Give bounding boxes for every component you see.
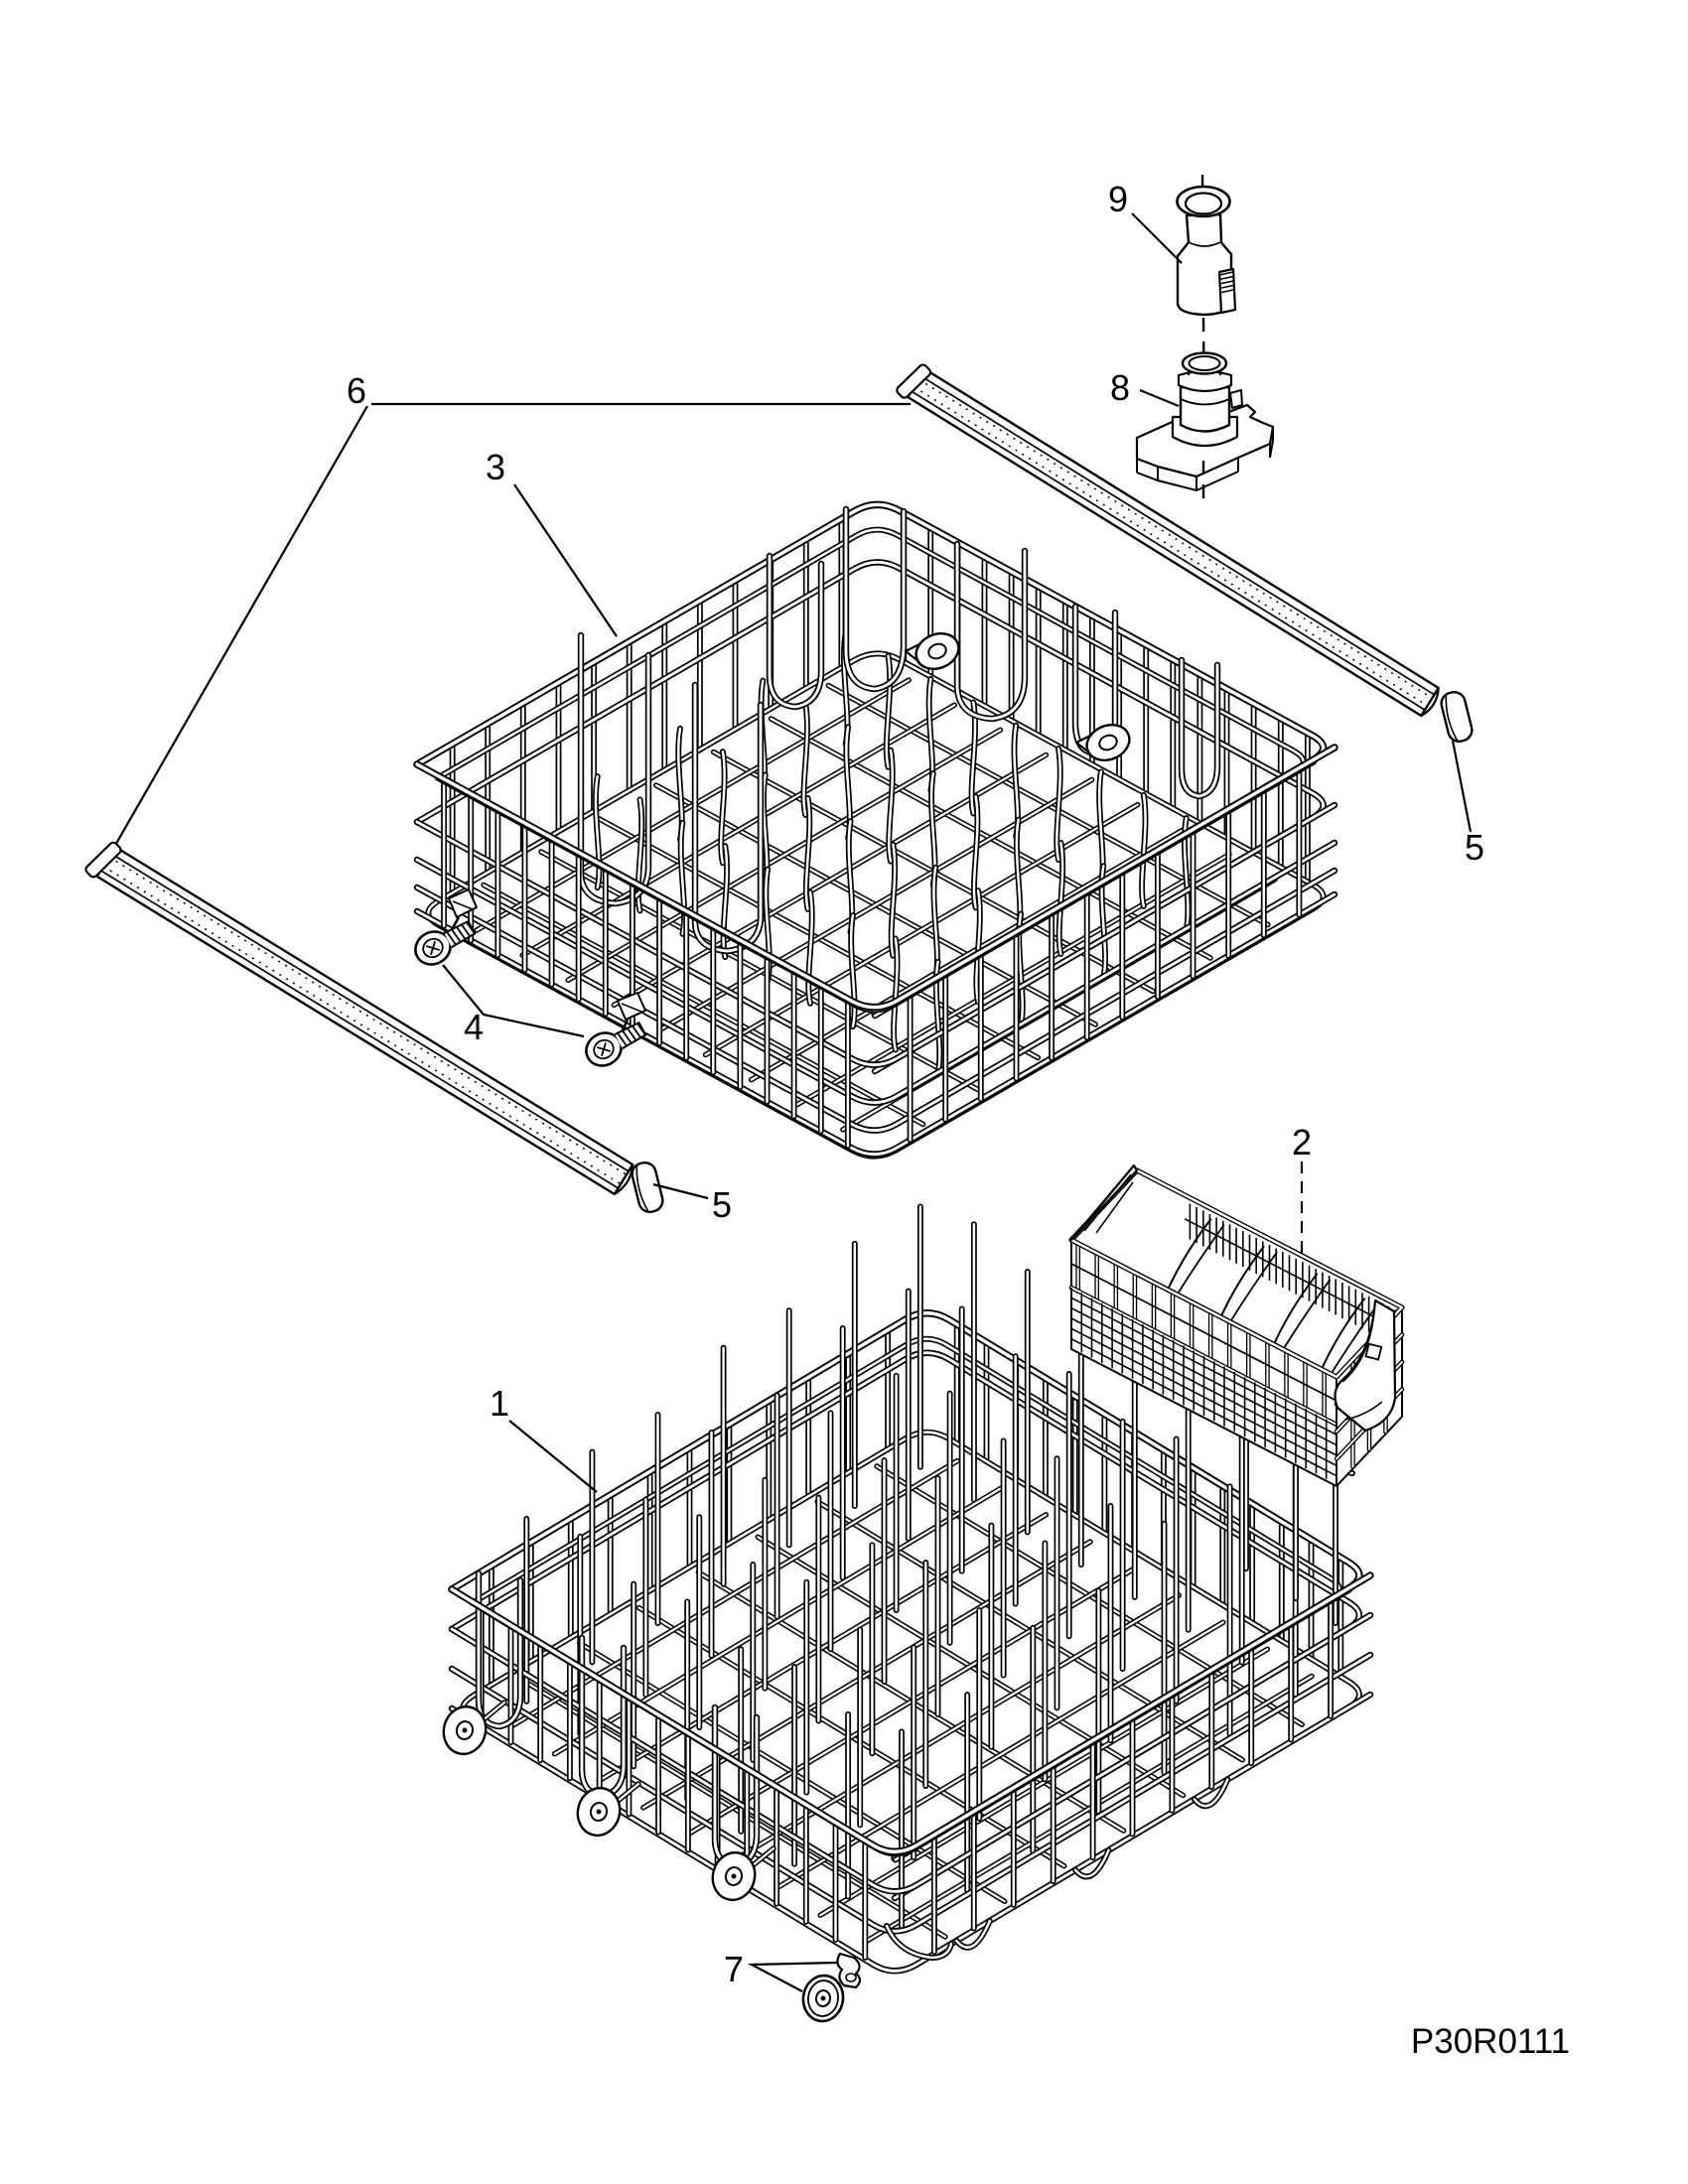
svg-text:8: 8	[1110, 367, 1130, 408]
svg-text:P30R0111: P30R0111	[1411, 2022, 1570, 2061]
svg-text:1: 1	[490, 1383, 509, 1424]
svg-text:4: 4	[464, 1007, 484, 1047]
svg-text:6: 6	[347, 370, 366, 411]
svg-text:5: 5	[1465, 827, 1484, 868]
svg-text:3: 3	[486, 447, 505, 487]
svg-text:7: 7	[724, 1949, 744, 1989]
svg-text:9: 9	[1108, 179, 1128, 219]
svg-text:5: 5	[712, 1184, 732, 1225]
svg-text:2: 2	[1292, 1122, 1312, 1162]
